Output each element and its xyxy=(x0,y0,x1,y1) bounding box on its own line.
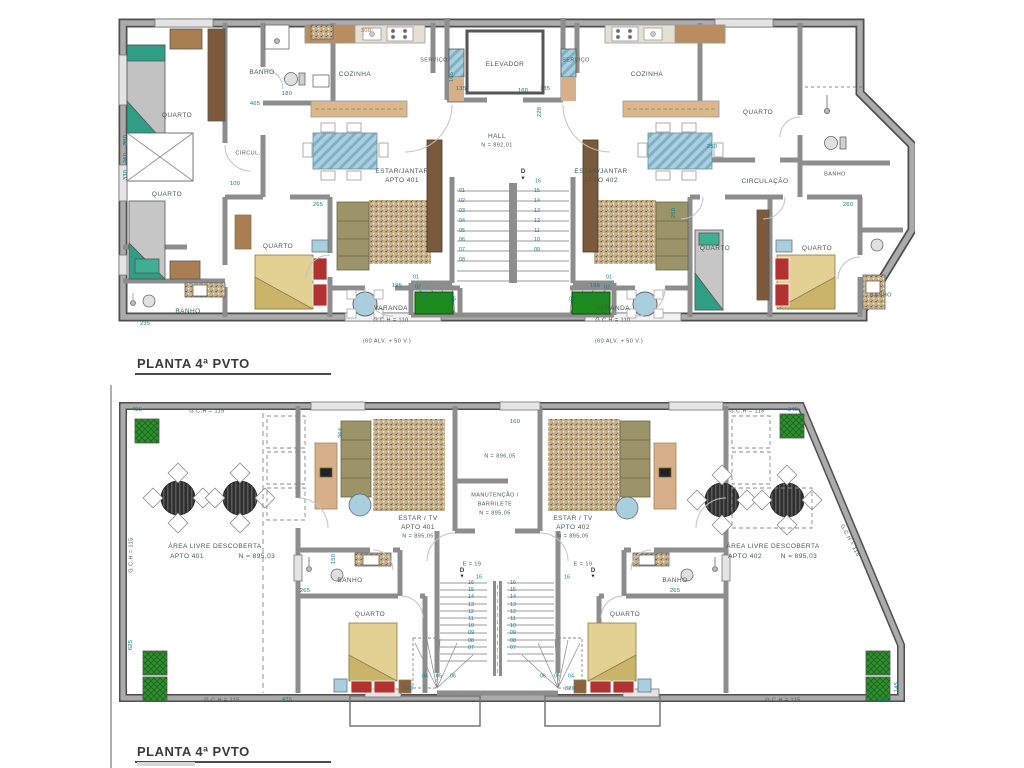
winder-step: 03 xyxy=(422,295,428,300)
step-number: 12 xyxy=(468,610,474,615)
step-number: 10 xyxy=(510,624,516,629)
winder-step: 06 xyxy=(540,674,546,679)
alv-note-l: (60 ALV. + 50 V.) xyxy=(363,339,411,345)
dim-195-r: 195 xyxy=(590,284,600,290)
dim-160: 160 xyxy=(518,89,528,95)
dim-300: 300 xyxy=(361,29,371,35)
winder-step: 04 xyxy=(435,297,441,302)
gch-label-l: G.C.H = 110 xyxy=(373,318,408,324)
estar-tv-nivel-l: N = 895,05 xyxy=(402,534,434,540)
stair-direction-arrow-icon: ▼ xyxy=(521,177,526,182)
room-label-estar-l: ESTAR/JANTAR xyxy=(375,169,428,176)
dim-320-r: 320 xyxy=(565,687,575,693)
stair-direction-arrow-icon: ▼ xyxy=(460,575,465,580)
area-livre-apto-r: APTO 402 xyxy=(728,554,762,561)
step-number: 07 xyxy=(510,646,516,651)
dim-250-r: 250 xyxy=(672,208,678,218)
step-number: 10 xyxy=(534,238,540,243)
dim-165: 165 xyxy=(450,72,456,82)
dim-265-r: 265 xyxy=(670,589,680,595)
step-number: 07 xyxy=(459,248,465,253)
stair-steps-left-column: 16 15 14 13 12 11 10 09 08 07 xyxy=(463,581,479,651)
room-label-quarto-br1: QUARTO xyxy=(700,246,730,253)
dim-160-b: 160 xyxy=(510,420,520,426)
step-number: 09 xyxy=(510,631,516,636)
dim-330-b: 330 xyxy=(124,170,130,180)
gch-label-tl: G.C.H = 115 xyxy=(189,409,224,415)
dim-135-l: 135 xyxy=(456,87,466,93)
cut-off-text-remnant xyxy=(137,762,195,766)
step-number: 08 xyxy=(468,639,474,644)
gch-label-tr: G.C.H = 115 xyxy=(729,409,764,415)
winder-step: 04 xyxy=(584,297,590,302)
room-label-quarto-tl: QUARTO xyxy=(162,113,192,120)
room-label-cozinha-l: COZINHA xyxy=(339,72,371,79)
gch-label-left-edge: G.C.H = 115 xyxy=(129,537,135,572)
dim-150: 150 xyxy=(332,554,338,564)
step-number: 16 xyxy=(468,581,474,586)
dim-260-a: 260 xyxy=(124,153,130,163)
room-label-quarto-bl: QUARTO xyxy=(263,244,293,251)
manutencao-nivel: N = 895,05 xyxy=(479,511,511,517)
step-number: 08 xyxy=(510,639,516,644)
winder-step: 04 xyxy=(568,674,574,679)
plan-title-top: PLANTA 4ª PVTO xyxy=(135,356,331,375)
dim-580: 580 xyxy=(878,698,888,704)
step-number: 08 xyxy=(459,258,465,263)
dim-260-r: 260 xyxy=(843,203,853,209)
dim-135-r: 135 xyxy=(540,87,550,93)
stair-steps-right-column: 15 14 13 12 11 10 09 xyxy=(529,189,545,254)
room-label-banho-r2: BANHO xyxy=(870,293,892,299)
step-number: 10 xyxy=(468,624,474,629)
stair-e19-r: E = 19 xyxy=(574,562,593,568)
dim-364: 364 xyxy=(339,428,345,438)
hall-level: N = 892,01 xyxy=(481,143,513,149)
stair-step-16-r: 16 xyxy=(564,575,570,580)
drawing-sheet: BANHO COZINHA SERVIÇO ELEVADOR SERVIÇO C… xyxy=(0,0,1024,768)
winder-step: 05 xyxy=(450,297,456,302)
dim-100: 100 xyxy=(230,182,240,188)
stair-e19-l: E = 19 xyxy=(463,562,482,568)
sheet-edge-line xyxy=(110,385,112,768)
step-number: 09 xyxy=(468,631,474,636)
step-number: 07 xyxy=(468,646,474,651)
winder-step: 02 xyxy=(604,285,610,290)
winder-step: 05 xyxy=(554,674,560,679)
step-number: 11 xyxy=(468,617,474,622)
dim-320-l: 320 xyxy=(403,687,413,693)
manutencao-label-2: BARRILETE xyxy=(478,502,513,508)
winder-step: 05 xyxy=(569,297,575,302)
dim-465: 465 xyxy=(250,102,260,108)
winder-step: 01 xyxy=(413,275,419,280)
area-livre-label-r: ÁREA LIVRE DESCOBERTA xyxy=(726,544,819,551)
stair-step-16: 16 xyxy=(535,179,541,184)
winder-step: 03 xyxy=(597,295,603,300)
step-number: 12 xyxy=(534,219,540,224)
floor-plan-bottom: G.C.H = 115 495 G.C.H = 115 625 G.C.H = … xyxy=(115,393,915,743)
winder-step: 06 xyxy=(450,674,456,679)
room-label-servico-l: SERVIÇO xyxy=(420,58,448,64)
step-number: 12 xyxy=(510,610,516,615)
area-livre-label-l: ÁREA LIVRE DESCOBERTA xyxy=(168,544,261,551)
dim-265: 265 xyxy=(313,203,323,209)
estar-tv-label-r: ESTAR / TV xyxy=(553,516,592,523)
dim-265-l: 265 xyxy=(300,589,310,595)
dim-495: 495 xyxy=(132,408,142,414)
room-label-hall: HALL xyxy=(488,134,506,141)
area-livre-nivel-l: N = 895,03 xyxy=(239,554,275,561)
dim-235: 235 xyxy=(140,322,150,328)
dim-330-a: 330 xyxy=(124,135,130,145)
winder-step: 02 xyxy=(415,285,421,290)
step-number: 03 xyxy=(459,209,465,214)
gch-label-r: G.C.H = 110 xyxy=(595,318,630,324)
room-label-circul: CIRCUL. xyxy=(235,151,260,157)
estar-tv-label-l: ESTAR / TV xyxy=(398,516,437,523)
estar-tv-apto-l: APTO 401 xyxy=(401,525,435,532)
step-number: 06 xyxy=(459,238,465,243)
stair-direction-arrow-icon: ▼ xyxy=(591,575,596,580)
gch-label-br: G.C.H = 115 xyxy=(765,698,800,704)
gch-label-bl: G.C.H = 115 xyxy=(204,698,239,704)
step-number: 09 xyxy=(534,248,540,253)
room-label-cozinha-r: COZINHA xyxy=(631,72,663,79)
stair-direction: D xyxy=(521,169,525,175)
room-label-banho-l: BANHO xyxy=(337,578,362,585)
step-number: 13 xyxy=(510,603,516,608)
room-label-varanda-r: VARANDA xyxy=(596,306,630,313)
room-label-quarto-r: QUARTO xyxy=(610,612,640,619)
step-number: 15 xyxy=(534,189,540,194)
nivel-896: N = 896,05 xyxy=(484,454,516,460)
apt-label-401: APTO 401 xyxy=(385,178,419,185)
room-label-banho-r: BANHO xyxy=(662,578,687,585)
area-livre-nivel-r: N = 895,03 xyxy=(781,554,817,561)
dim-180: 180 xyxy=(282,92,292,98)
step-number: 14 xyxy=(468,595,474,600)
stair-steps-left-column: 01 02 03 04 05 06 07 08 xyxy=(454,189,470,264)
dim-145: 145 xyxy=(895,682,901,692)
room-label-quarto-l: QUARTO xyxy=(355,612,385,619)
apt-label-402: APTO 402 xyxy=(584,178,618,185)
dim-435: 435 xyxy=(282,698,292,704)
step-number: 14 xyxy=(510,595,516,600)
step-number: 02 xyxy=(459,199,465,204)
stair-step-16-l: 16 xyxy=(476,575,482,580)
room-label-elevador: ELEVADOR xyxy=(486,62,525,69)
step-number: 11 xyxy=(534,229,540,234)
step-number: 15 xyxy=(468,588,474,593)
floor-plan-bottom-drawing xyxy=(115,393,915,743)
room-label-circulacao: CIRCULAÇÃO xyxy=(741,179,788,186)
winder-step: 04 xyxy=(422,674,428,679)
room-label-banho-bl: BANHO xyxy=(175,309,200,316)
room-label-quarto-br2: QUARTO xyxy=(802,246,832,253)
floor-plan-top: BANHO COZINHA SERVIÇO ELEVADOR SERVIÇO C… xyxy=(115,15,915,350)
estar-tv-nivel-r: N = 895,05 xyxy=(557,534,589,540)
step-number: 11 xyxy=(510,617,516,622)
room-label-quarto-tr: QUARTO xyxy=(743,110,773,117)
step-number: 13 xyxy=(534,209,540,214)
area-livre-apto-l: APTO 401 xyxy=(170,554,204,561)
plan-title-bottom: PLANTA 4ª PVTO xyxy=(135,744,331,763)
room-label-banho-tl: BANHO xyxy=(249,70,274,77)
room-label-banho-r1: BANHO xyxy=(824,172,846,178)
step-number: 14 xyxy=(534,199,540,204)
stair-steps-right-column: 16 15 14 13 12 11 10 09 08 07 xyxy=(505,581,521,651)
dim-250-t: 250 xyxy=(707,145,717,151)
step-number: 05 xyxy=(459,229,465,234)
winder-step: 01 xyxy=(606,275,612,280)
room-label-varanda-l: VARANDA xyxy=(374,306,408,313)
manutencao-label-1: MANUTENÇÃO / xyxy=(471,493,519,499)
room-label-estar-r: ESTAR/JANTAR xyxy=(574,169,627,176)
step-number: 15 xyxy=(510,588,516,593)
dim-345: 345 xyxy=(788,408,798,414)
winder-step: 05 xyxy=(436,674,442,679)
step-number: 16 xyxy=(510,581,516,586)
dim-625: 625 xyxy=(129,640,135,650)
step-number: 13 xyxy=(468,603,474,608)
step-number: 04 xyxy=(459,219,465,224)
room-label-servico-r: SERVIÇO xyxy=(562,58,590,64)
room-label-quarto-ml: QUARTO xyxy=(152,192,182,199)
dim-195-l: 195 xyxy=(392,284,402,290)
estar-tv-apto-r: APTO 402 xyxy=(556,525,590,532)
step-number: 01 xyxy=(459,189,465,194)
alv-note-r: (60 ALV. + 50 V.) xyxy=(595,339,643,345)
dim-228: 228 xyxy=(538,107,544,117)
